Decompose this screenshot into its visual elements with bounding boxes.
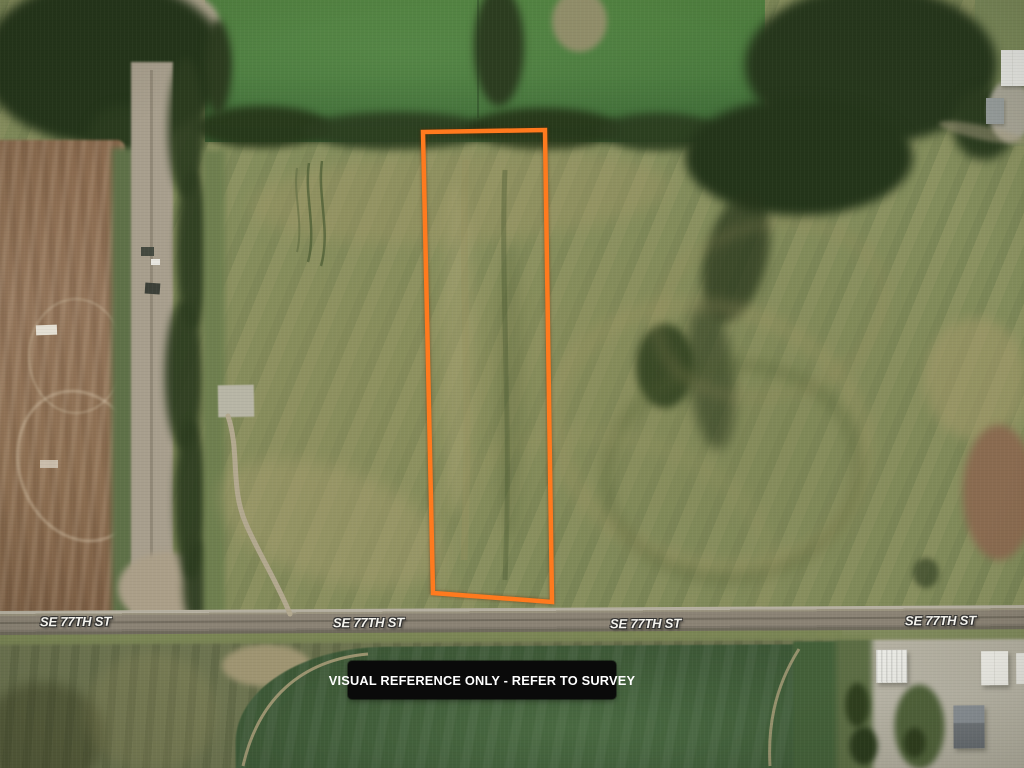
disclaimer-banner-text: VISUAL REFERENCE ONLY - REFER TO SURVEY xyxy=(329,673,635,688)
street-label-se-77th-st: SE 77TH ST xyxy=(40,614,111,629)
street-label-se-77th-st: SE 77TH ST xyxy=(610,616,681,631)
street-label-se-77th-st: SE 77TH ST xyxy=(905,613,976,628)
parcel-boundary-overlay xyxy=(0,0,1024,768)
street-label-se-77th-st: SE 77TH ST xyxy=(333,615,404,630)
parcel-boundary xyxy=(423,130,552,602)
aerial-map: SE 77TH ST SE 77TH ST SE 77TH ST SE 77TH… xyxy=(0,0,1024,768)
disclaimer-banner: VISUAL REFERENCE ONLY - REFER TO SURVEY xyxy=(348,661,616,699)
